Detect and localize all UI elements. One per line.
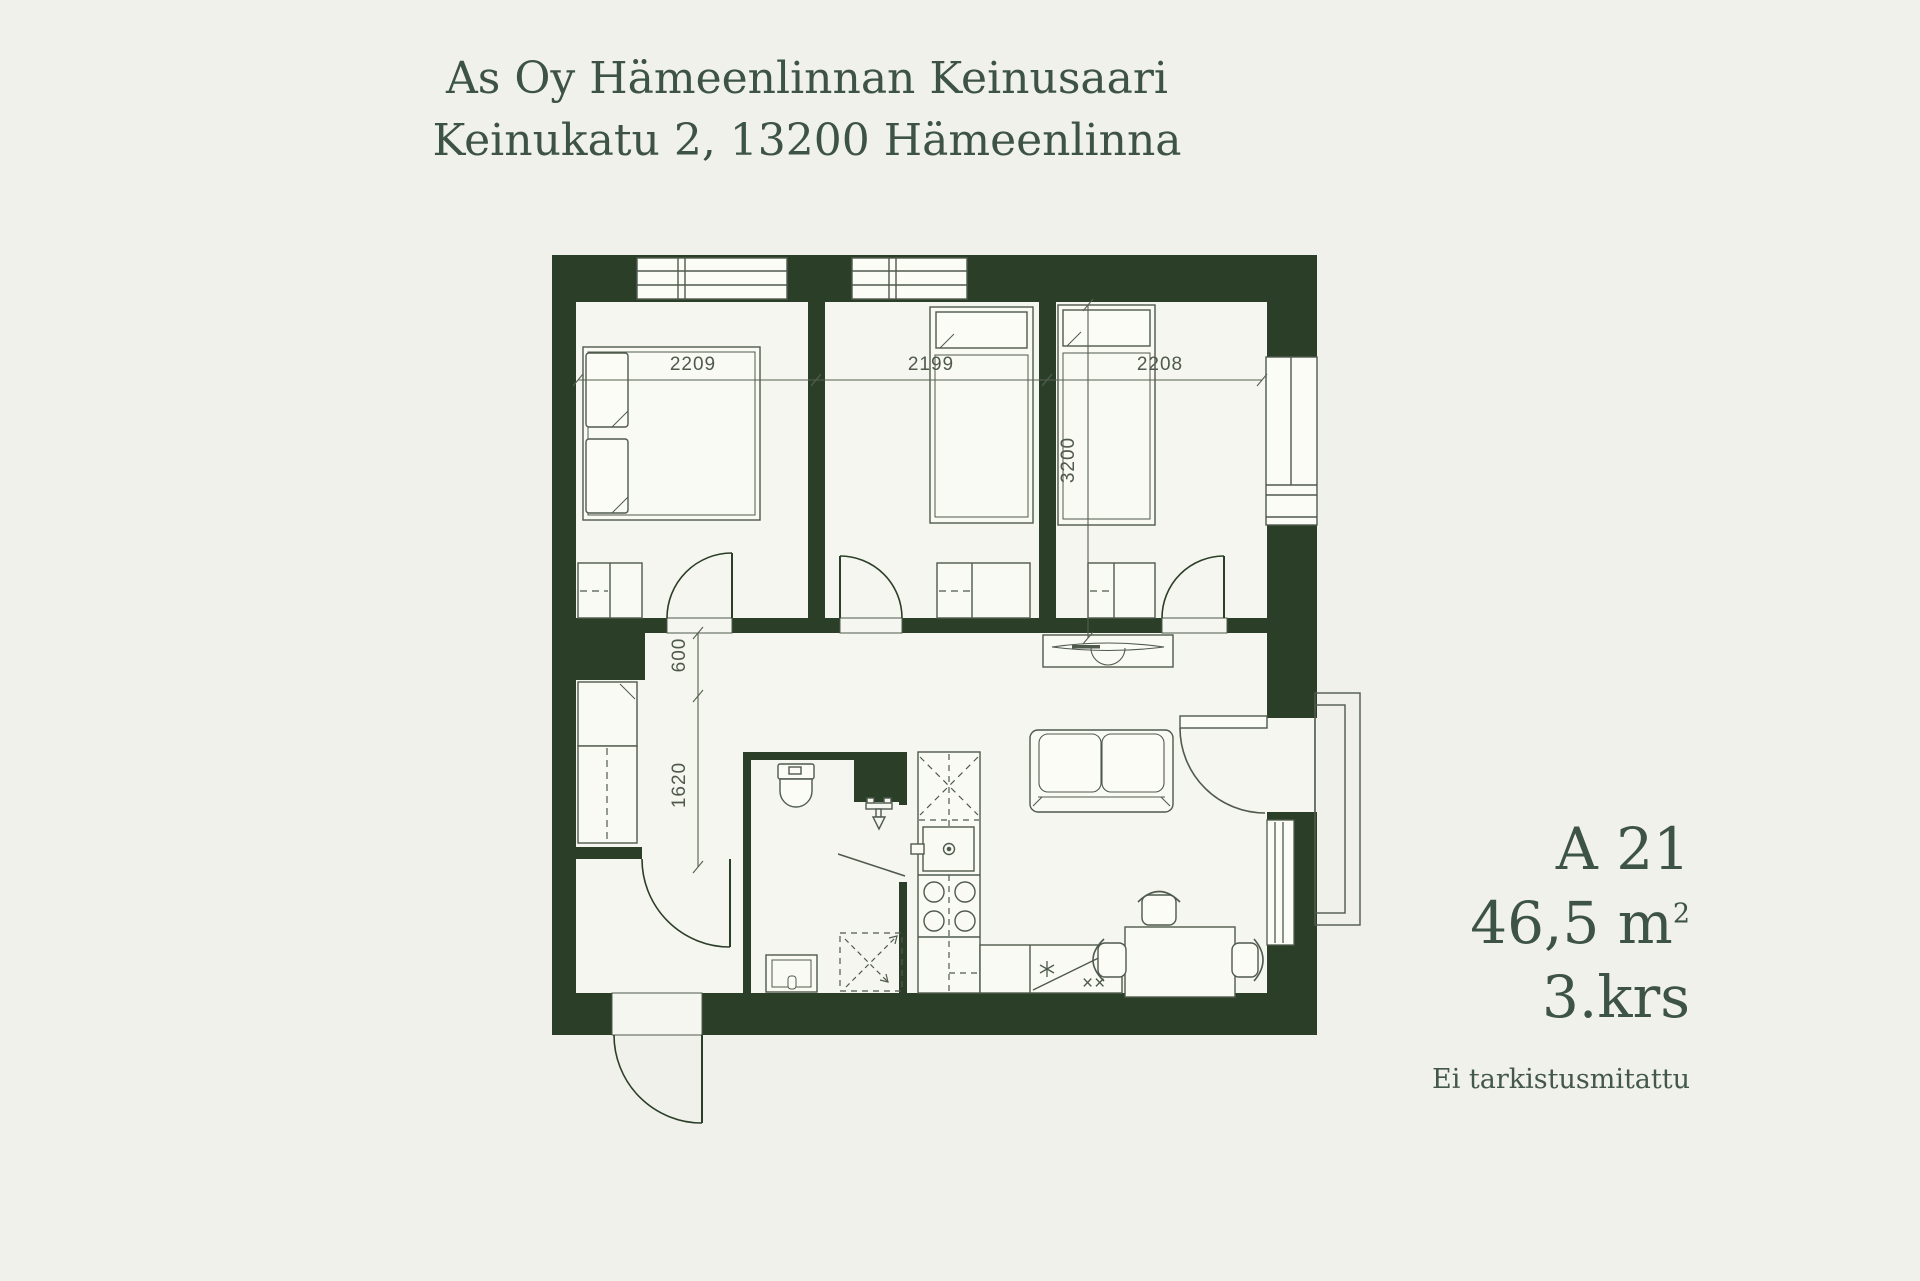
wall-bathroom-left bbox=[743, 752, 751, 993]
apartment-info: A 21 46,5 m2 3.krs Ei tarkistusmitattu bbox=[1432, 812, 1690, 1096]
floor-plan-page: As Oy Hämeenlinnan Keinusaari Keinukatu … bbox=[0, 0, 1920, 1281]
right-wall-closet bbox=[1266, 357, 1317, 525]
hallway bbox=[578, 682, 637, 843]
hall-closet-lower bbox=[578, 746, 637, 843]
page-title: As Oy Hämeenlinnan Keinusaari Keinukatu … bbox=[432, 48, 1181, 172]
single-bed-bedroom3 bbox=[1058, 305, 1155, 525]
wall-bedroom2-3 bbox=[1039, 302, 1056, 633]
housing-company-name: As Oy Hämeenlinnan Keinusaari bbox=[432, 48, 1181, 110]
wardrobe-bedroom2 bbox=[937, 563, 1030, 618]
apartment-id: A 21 bbox=[1432, 812, 1690, 886]
wardrobe-bedroom3 bbox=[1088, 563, 1155, 618]
dining-chair-right bbox=[1232, 939, 1263, 981]
threshold-bedroom3 bbox=[1162, 618, 1227, 633]
tv-sideboard bbox=[1043, 635, 1173, 667]
wall-hall-stub bbox=[576, 847, 642, 859]
threshold-entry bbox=[612, 993, 702, 1035]
toilet bbox=[778, 764, 814, 807]
dining-chair-left bbox=[1093, 939, 1126, 981]
wall-bedrooms-bottom-c bbox=[902, 618, 1162, 633]
floor-plan-drawing: ×× bbox=[552, 255, 1382, 1135]
wall-hall-chunk bbox=[576, 633, 645, 680]
threshold-bedroom2 bbox=[840, 618, 902, 633]
balcony-railing-inner bbox=[1315, 705, 1345, 913]
balcony bbox=[1315, 693, 1360, 925]
dining-chair-top bbox=[1138, 892, 1180, 926]
wall-bathroom-top bbox=[743, 752, 907, 760]
hall-closet-upper bbox=[578, 682, 637, 746]
dim-bedroom3-depth: 3200 bbox=[1058, 437, 1079, 483]
dim-hall-closet-run: 1620 bbox=[669, 762, 690, 808]
wall-bedroom1-2 bbox=[808, 302, 825, 633]
single-bed-bedroom2 bbox=[930, 307, 1033, 523]
dining-table bbox=[1125, 927, 1235, 997]
dim-bedroom3: 2208 bbox=[1137, 354, 1183, 375]
dim-bedroom2: 2199 bbox=[908, 354, 954, 375]
opening-balcony-door bbox=[1267, 718, 1317, 812]
apartment-floor-number: 3.krs bbox=[1432, 960, 1690, 1034]
right-wall-window bbox=[1267, 820, 1294, 945]
apartment-area: 46,5 m2 bbox=[1432, 886, 1690, 960]
wall-bedrooms-bottom-d bbox=[1227, 618, 1267, 633]
street-address: Keinukatu 2, 13200 Hämeenlinna bbox=[432, 110, 1181, 172]
duct-block bbox=[854, 760, 907, 802]
washing-machine bbox=[766, 955, 817, 992]
wall-left bbox=[552, 255, 576, 1035]
dim-hall-niche: 600 bbox=[669, 638, 690, 673]
wall-bathroom-right-lower bbox=[899, 882, 907, 993]
square-meter-superscript: 2 bbox=[1673, 899, 1690, 930]
not-verified-note: Ei tarkistusmitattu bbox=[1432, 1064, 1690, 1096]
wardrobe-bedroom1 bbox=[578, 563, 642, 618]
window-bedroom2 bbox=[852, 258, 967, 299]
sofa bbox=[1030, 730, 1173, 812]
door-entry bbox=[614, 1035, 702, 1123]
window-bedroom1 bbox=[637, 258, 787, 299]
wall-bedrooms-bottom-a bbox=[576, 618, 667, 633]
balcony-railing-outer bbox=[1315, 693, 1360, 925]
dim-bedroom1: 2209 bbox=[670, 354, 716, 375]
wall-bedrooms-bottom-b bbox=[732, 618, 840, 633]
